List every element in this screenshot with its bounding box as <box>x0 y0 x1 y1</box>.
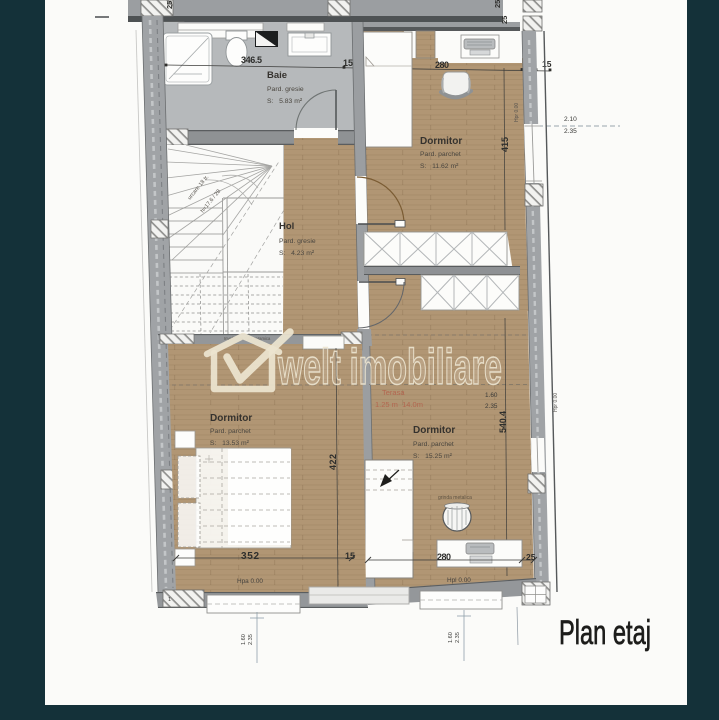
svg-text:2.35: 2.35 <box>485 403 498 410</box>
svg-text:1.25 m 14.0m: 1.25 m 14.0m <box>375 400 423 409</box>
svg-text:15: 15 <box>542 59 552 69</box>
svg-text:1: 1 <box>168 597 171 603</box>
svg-text:S: 11.62 m²: S: 11.62 m² <box>420 163 459 170</box>
svg-text:S: 5.83 m²: S: 5.83 m² <box>267 98 303 105</box>
svg-text:25: 25 <box>493 0 502 8</box>
svg-text:Pard. parchet: Pard. parchet <box>420 151 461 158</box>
svg-text:280: 280 <box>435 60 449 70</box>
svg-text:2.35: 2.35 <box>455 632 461 643</box>
svg-text:S: 15.25 m²: S: 15.25 m² <box>413 453 453 460</box>
svg-text:Dormitor: Dormitor <box>210 413 252 424</box>
svg-text:grinda metalica: grinda metalica <box>438 495 472 501</box>
svg-text:280: 280 <box>437 552 451 562</box>
svg-text:25: 25 <box>526 552 536 562</box>
svg-text:1.60: 1.60 <box>448 632 454 643</box>
svg-text:Hpa 0.00: Hpa 0.00 <box>237 578 263 585</box>
svg-text:Hpr 0.00: Hpr 0.00 <box>553 393 559 412</box>
svg-text:415: 415 <box>500 137 510 152</box>
svg-text:Hpr 0.00: Hpr 0.00 <box>514 103 520 122</box>
svg-text:25: 25 <box>165 1 174 9</box>
svg-text:2.10: 2.10 <box>564 116 577 123</box>
svg-text:Plan etaj: Plan etaj <box>559 614 651 652</box>
svg-text:welt imobiliare: welt imobiliare <box>277 339 502 395</box>
svg-text:Hol: Hol <box>279 221 294 232</box>
svg-text:15: 15 <box>343 58 353 68</box>
svg-text:540.4: 540.4 <box>498 411 508 433</box>
svg-text:Pard. gresie: Pard. gresie <box>279 238 316 245</box>
svg-text:Pard. gresie: Pard. gresie <box>267 86 304 93</box>
svg-text:S: 13.53 m²: S: 13.53 m² <box>210 440 250 447</box>
svg-text:352: 352 <box>241 551 259 562</box>
svg-text:Dormitor: Dormitor <box>413 425 455 436</box>
svg-text:Pard. parchet: Pard. parchet <box>210 428 251 435</box>
svg-text:Dormitor: Dormitor <box>420 136 462 147</box>
svg-text:25: 25 <box>500 16 509 24</box>
svg-text:S: 4.23 m²: S: 4.23 m² <box>279 250 315 257</box>
svg-text:422: 422 <box>328 454 338 470</box>
svg-text:Baie: Baie <box>267 70 287 81</box>
svg-text:15: 15 <box>345 551 355 561</box>
svg-text:346.5: 346.5 <box>241 55 262 65</box>
svg-text:1.60: 1.60 <box>241 634 247 645</box>
svg-text:Pard. parchet: Pard. parchet <box>413 441 454 448</box>
svg-text:2.35: 2.35 <box>564 128 577 135</box>
svg-text:2.35: 2.35 <box>248 634 254 645</box>
